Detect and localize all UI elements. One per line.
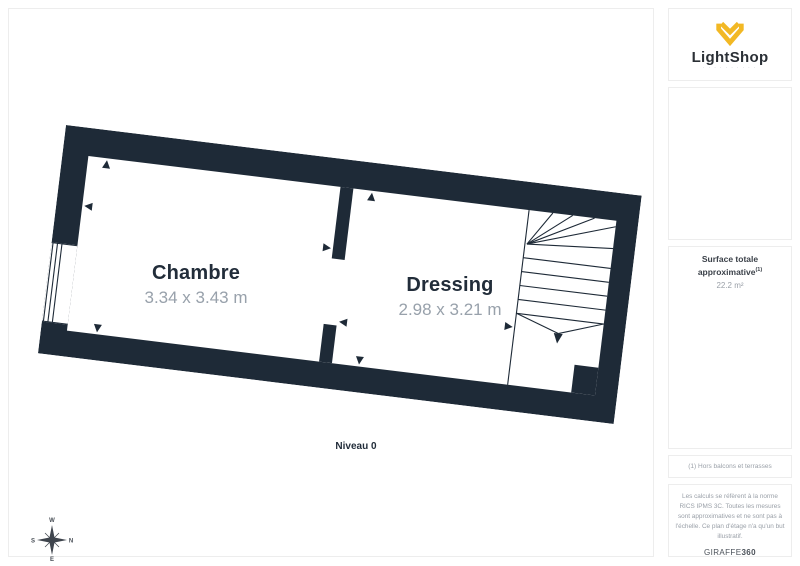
wall-pillar	[571, 365, 598, 396]
footnote-card: (1) Hors balcons et terrasses	[668, 455, 792, 478]
room-dimensions-dressing: 2.98 x 3.21 m	[365, 300, 535, 320]
legal-card: Les calculs se réfèrent à la norme RICS …	[668, 484, 792, 557]
page: Chambre 3.34 x 3.43 m Dressing 2.98 x 3.…	[0, 0, 800, 566]
compass-rose-icon: W N S E	[29, 513, 75, 563]
floorplan-panel: Chambre 3.34 x 3.43 m Dressing 2.98 x 3.…	[8, 8, 654, 557]
surface-label-text: Surface totale approximative	[698, 254, 758, 277]
compass-label-top: W	[49, 518, 55, 524]
surface-card: Surface totale approximative(1) 22.2 m²	[668, 246, 792, 449]
surface-total-label: Surface totale approximative(1)	[669, 254, 791, 278]
lightshop-logo-icon	[713, 20, 747, 47]
compass-label-bottom: E	[50, 557, 54, 563]
credit-suffix-text: 360	[741, 548, 756, 557]
empty-card	[668, 87, 792, 240]
compass-label-left: S	[31, 539, 35, 545]
room-name-chambre: Chambre	[111, 262, 281, 285]
surface-footnote-marker: (1)	[755, 267, 762, 273]
logo-card: LightShop · · · · · · · · · ·	[668, 8, 792, 81]
logo-text: LightShop	[692, 49, 769, 66]
surface-total-value: 22.2 m²	[669, 281, 791, 290]
legal-disclaimer: Les calculs se réfèrent à la norme RICS …	[674, 492, 786, 542]
room-dimensions-chambre: 3.34 x 3.43 m	[111, 288, 281, 308]
logo-tagline: · · · · · · · · · ·	[703, 66, 757, 70]
compass-label-right: N	[69, 539, 73, 545]
giraffe360-credit: GIRAFFE360	[674, 548, 786, 557]
room-name-dressing: Dressing	[365, 274, 535, 297]
credit-brand-text: GIRAFFE	[704, 548, 741, 557]
level-label: Niveau 0	[306, 441, 406, 452]
footnote-text: (1) Hors balcons et terrasses	[688, 463, 771, 470]
